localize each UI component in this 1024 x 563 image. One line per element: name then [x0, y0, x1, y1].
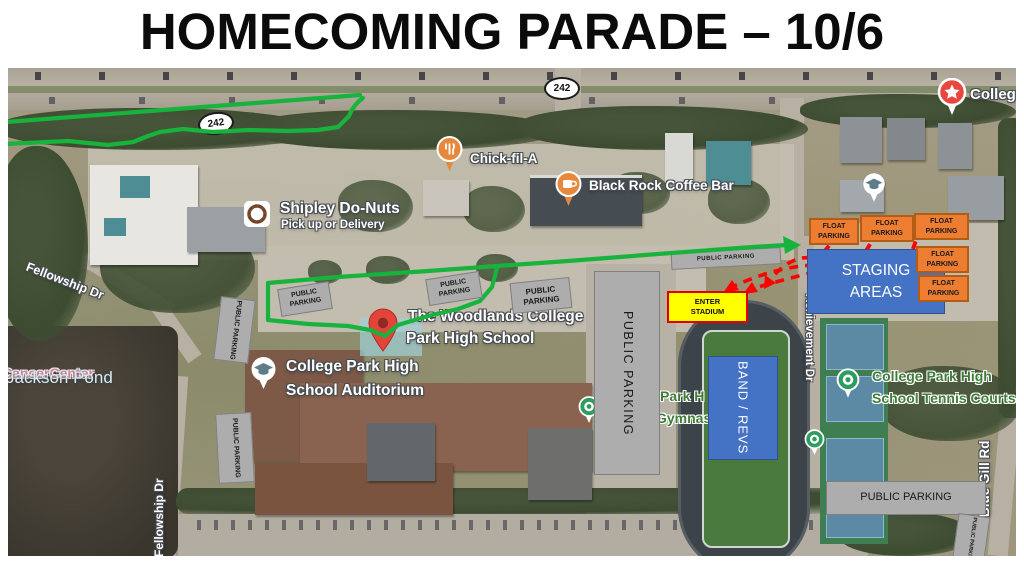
page-title: HOMECOMING PARADE – 10/6 [0, 0, 1024, 66]
slide: HOMECOMING PARADE – 10/6 [0, 0, 1024, 563]
float-parking-box: FLOAT PARKING [918, 275, 969, 302]
float-parking-box: FLOAT PARKING [809, 218, 859, 245]
public-parking-box-large: PUBLIC PARKING [594, 271, 660, 475]
public-parking-box-wide: PUBLIC PARKING [826, 481, 986, 515]
float-parking-box: FLOAT PARKING [860, 215, 914, 242]
satellite-map: CancerCenter Jackson Pond Fellowship Dr … [8, 68, 1016, 556]
route-arrowhead [783, 236, 801, 254]
enter-stadium-box: ENTER STADIUM [667, 291, 748, 323]
red-arrowhead [764, 275, 776, 289]
float-parking-box: FLOAT PARKING [914, 213, 969, 240]
float-parking-box: FLOAT PARKING [916, 246, 969, 273]
public-parking-box: PUBLIC PARKING [510, 277, 573, 314]
public-parking-box-small: PUBLIC PARKING [952, 513, 991, 556]
route-segment-highway-feeder [8, 98, 363, 145]
route-segment-to-staging [268, 245, 787, 283]
band-revs-box: BAND / REVS [708, 356, 778, 460]
route-segment-highway-top [8, 95, 360, 122]
public-parking-box-vertical: PUBLIC PARKING [215, 412, 255, 484]
